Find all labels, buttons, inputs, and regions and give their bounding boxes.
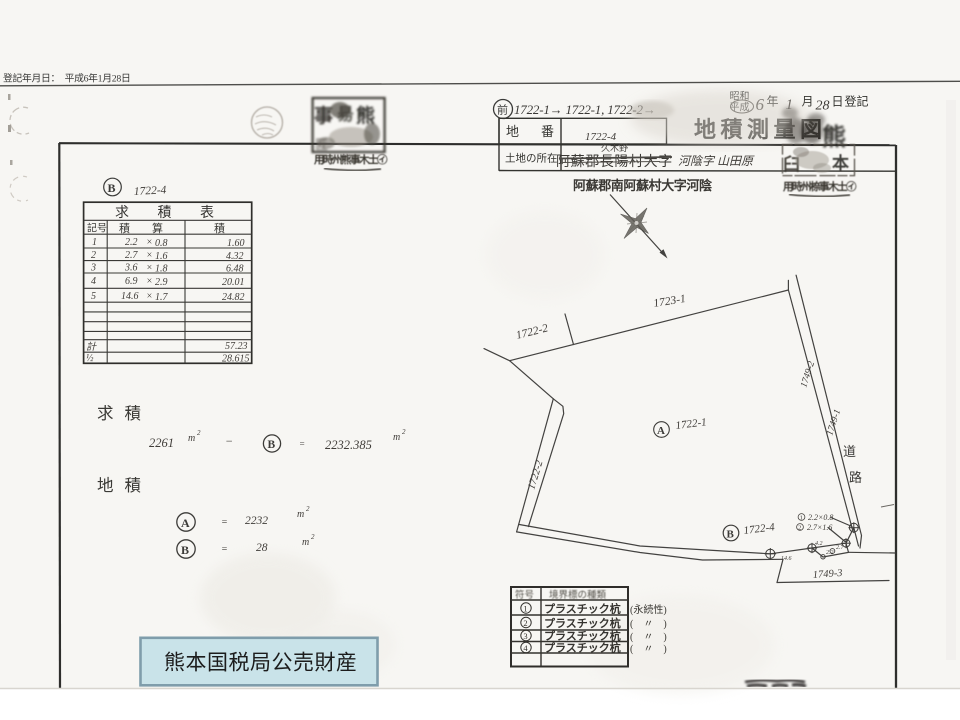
svg-text:14.6: 14.6 (121, 291, 139, 302)
svg-text:記号: 記号 (87, 222, 107, 235)
svg-text:地番: 地番 (506, 124, 576, 139)
svg-text:地積: 地積 (97, 476, 152, 495)
svg-text:前: 前 (497, 103, 508, 117)
svg-text:1.6: 1.6 (155, 251, 168, 262)
svg-text:2: 2 (402, 428, 406, 436)
svg-text:用時州熊事木土㋑: 用時州熊事木土㋑ (313, 153, 388, 166)
svg-text:×: × (146, 276, 153, 287)
svg-text:5: 5 (91, 291, 96, 302)
svg-text:2.2: 2.2 (826, 550, 834, 556)
svg-text:4.2: 4.2 (815, 540, 823, 547)
svg-text:1749-3: 1749-3 (812, 568, 842, 581)
svg-text:道: 道 (843, 444, 856, 459)
svg-text:1: 1 (523, 604, 527, 614)
svg-text:½: ½ (86, 353, 94, 364)
svg-text:24.82: 24.82 (222, 292, 245, 303)
svg-text:B: B (268, 439, 276, 451)
svg-text:m: m (297, 509, 304, 520)
svg-text:熊本国税局公売財産: 熊本国税局公売財産 (164, 652, 358, 675)
svg-text:=: = (221, 517, 228, 528)
svg-text:1.7: 1.7 (155, 292, 169, 303)
svg-text:×: × (146, 250, 153, 261)
svg-text:積: 積 (214, 221, 225, 235)
svg-text:28.615: 28.615 (222, 354, 250, 365)
svg-text:2: 2 (306, 505, 310, 513)
svg-text:m: m (302, 537, 309, 548)
svg-text:熊: 熊 (822, 123, 846, 151)
svg-text:A: A (657, 425, 665, 437)
svg-text:2: 2 (197, 429, 201, 437)
svg-text:本: 本 (832, 153, 849, 173)
svg-text:=: = (299, 439, 305, 449)
svg-text:久木野: 久木野 (601, 142, 628, 153)
svg-text:プラスチック杭: プラスチック杭 (544, 629, 621, 643)
svg-text:2232.385: 2232.385 (325, 438, 372, 452)
svg-text:1.60: 1.60 (227, 238, 245, 249)
svg-text:2: 2 (798, 525, 801, 532)
svg-text:1722-4: 1722-4 (134, 184, 167, 198)
svg-text:用時州㮈事木土㋑: 用時州㮈事木土㋑ (782, 180, 857, 193)
svg-text:登記年月日： 平成6年1月28日: 登記年月日： 平成6年1月28日 (3, 72, 130, 85)
svg-text:3: 3 (523, 631, 527, 641)
svg-text:B: B (181, 543, 189, 557)
svg-text:28: 28 (816, 99, 830, 114)
svg-text:57.23: 57.23 (225, 341, 248, 352)
svg-text:2: 2 (523, 618, 527, 628)
svg-text:プラスチック杭: プラスチック杭 (544, 641, 621, 655)
svg-text:求積: 求積 (97, 404, 152, 423)
svg-text:河陰字 山田原: 河陰字 山田原 (678, 154, 755, 168)
svg-text:プラスチック杭: プラスチック杭 (544, 616, 621, 630)
svg-text:日: 日 (832, 95, 844, 109)
svg-text:( 〃 ): ( 〃 ) (630, 644, 667, 655)
svg-text:20.01: 20.01 (222, 277, 245, 288)
svg-text:3: 3 (90, 263, 96, 274)
svg-text:プラスチック杭: プラスチック杭 (544, 602, 621, 616)
svg-text:m: m (188, 433, 195, 444)
svg-text:×: × (146, 291, 153, 302)
svg-text:4: 4 (523, 643, 528, 653)
svg-text:3.6: 3.6 (124, 263, 138, 274)
svg-text:1.8: 1.8 (155, 264, 168, 275)
svg-text:阿蘇郡南阿蘇村大字河陰: 阿蘇郡南阿蘇村大字河陰 (573, 178, 713, 193)
svg-text:6.48: 6.48 (226, 264, 244, 275)
svg-text:2.2: 2.2 (125, 237, 138, 248)
svg-text:×: × (146, 263, 153, 274)
svg-text:事: 事 (314, 104, 333, 127)
svg-text:2: 2 (311, 533, 315, 541)
svg-text:月: 月 (802, 95, 814, 109)
svg-text:6.9: 6.9 (125, 276, 138, 287)
svg-text:1: 1 (800, 515, 803, 522)
svg-text:4.32: 4.32 (226, 251, 244, 262)
svg-text:A: A (181, 516, 190, 530)
svg-text:2: 2 (91, 250, 96, 261)
svg-text:1: 1 (92, 237, 97, 248)
svg-text:2.2×0.8: 2.2×0.8 (808, 513, 833, 522)
svg-text:2.9: 2.9 (155, 277, 168, 288)
svg-text:求積表: 求積表 (115, 205, 243, 221)
svg-text:境界標の種類: 境界標の種類 (549, 589, 607, 601)
svg-text:×: × (146, 237, 153, 248)
svg-text:=: = (221, 544, 228, 555)
svg-text:( 〃 ): ( 〃 ) (630, 619, 667, 630)
svg-text:2.7: 2.7 (125, 250, 139, 261)
svg-text:B: B (727, 529, 735, 541)
svg-text:(永続性): (永続性) (630, 603, 667, 616)
svg-text:m: m (393, 432, 400, 443)
svg-text:4: 4 (91, 276, 96, 287)
svg-text:匠: 匠 (315, 137, 328, 152)
svg-text:0.8: 0.8 (155, 238, 168, 249)
svg-text:2.7×1.6: 2.7×1.6 (807, 523, 832, 532)
svg-text:28: 28 (256, 542, 268, 554)
svg-text:2.7: 2.7 (836, 545, 845, 551)
svg-text:路: 路 (849, 470, 862, 485)
svg-text:2232: 2232 (245, 515, 268, 527)
svg-text:符号: 符号 (515, 589, 534, 601)
svg-text:1722-4: 1722-4 (585, 131, 617, 143)
svg-text:−: − (225, 434, 233, 448)
svg-text:14.6: 14.6 (781, 555, 792, 562)
svg-text:B: B (108, 181, 116, 195)
svg-text:( 〃 ): ( 〃 ) (630, 632, 667, 643)
svg-text:登記: 登記 (845, 94, 869, 109)
svg-text:積算: 積算 (119, 221, 185, 235)
svg-text:土地の所在: 土地の所在 (505, 152, 558, 165)
svg-text:計: 計 (86, 341, 97, 353)
svg-text:2261: 2261 (149, 436, 174, 450)
